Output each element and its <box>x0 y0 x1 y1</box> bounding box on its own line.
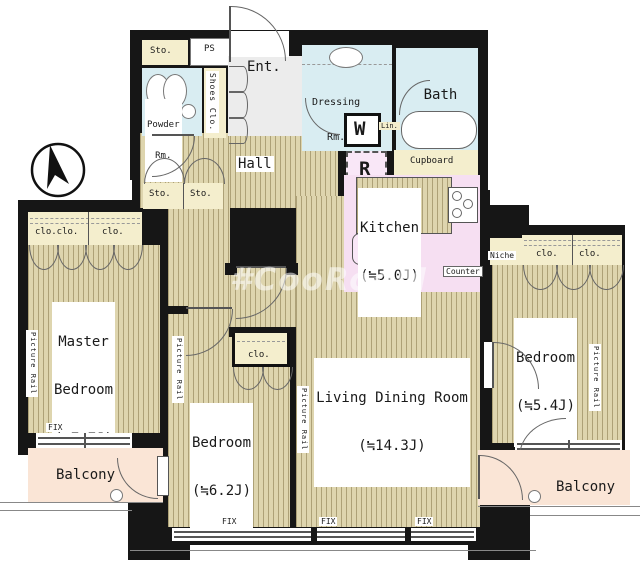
balcony-drain-icon <box>528 490 541 503</box>
bedroom3-closet2-label: clo. <box>577 249 603 259</box>
powder-bowl-icon <box>181 104 196 119</box>
pipe-space-label: PS <box>202 44 217 54</box>
shoe-cabinet-door-icon <box>229 118 248 144</box>
hall-storage1-label: Sto. <box>147 189 173 199</box>
bedroom2-top-wall <box>168 306 188 314</box>
entrance-label: Ent. <box>245 59 283 75</box>
bottom-window <box>172 528 476 541</box>
railing-line <box>0 510 132 511</box>
watermark: #CooRooM <box>230 262 429 298</box>
master-picture-rail-label: Picture Rail <box>26 330 38 397</box>
balcony-drain-icon <box>110 489 123 502</box>
railing-line <box>478 506 640 507</box>
stove-burner-icon <box>452 208 462 218</box>
shoes-closet-label: Shoes Clo. <box>206 71 219 133</box>
fix3-label: FIX <box>415 517 433 526</box>
bedroom3-closet1-label: clo. <box>534 249 560 259</box>
window-mullion <box>311 528 317 541</box>
storage-top-left-label: Sto. <box>148 46 174 56</box>
bedroom2-label: Bedroom (≒6.2J) <box>190 403 253 532</box>
niche-label: Niche <box>488 251 516 260</box>
dressing-sink-icon <box>329 47 363 68</box>
stove-burner-icon <box>463 199 473 209</box>
railing-line <box>0 502 163 503</box>
master-closet1-label: clo.clo. <box>33 227 80 237</box>
railing-line <box>130 550 536 551</box>
entrance-door-arc <box>231 6 286 61</box>
hall-storage-divider <box>183 183 184 209</box>
balcony-right-label: Balcony <box>554 479 617 495</box>
fix2-label: FIX <box>319 517 337 526</box>
counter-label: Counter <box>443 266 483 277</box>
master-closet2-label: clo. <box>100 227 126 237</box>
floor-plan: Sto. PS Powder Rm. Shoes Clo. Ent. Dress… <box>0 0 640 569</box>
north-arrow-icon <box>28 140 88 200</box>
balcony-left-label: Balcony <box>54 467 117 483</box>
living-label: Living Dining Room (≒14.3J) <box>314 358 470 487</box>
master-fix-label: FIX <box>46 423 64 432</box>
bedroom3-closet-divider <box>572 235 573 265</box>
linen-label: Lin. <box>379 122 400 130</box>
window-tick <box>84 433 86 449</box>
living-picture-rail-label: Picture Rail <box>297 386 309 453</box>
shoe-cabinet-door-icon <box>229 66 248 92</box>
master-closet-rail <box>30 223 140 224</box>
master-closet-divider <box>88 212 89 245</box>
shoe-cabinet-door-icon <box>229 92 248 118</box>
master-closet-rail <box>30 218 140 219</box>
washer-label: W <box>352 119 367 141</box>
bedroom2-closet-label: clo. <box>246 350 272 360</box>
window-line <box>174 531 474 533</box>
railing-line <box>530 515 640 516</box>
fix1-label: FIX <box>220 517 238 526</box>
hall-storage2-label: Sto. <box>188 189 214 199</box>
cupboard-label: Cupboard <box>408 156 455 166</box>
stove-burner-icon <box>452 191 462 201</box>
balcony-left-door-leaf <box>157 456 169 496</box>
bedroom2-picture-rail-label: Picture Rail <box>172 336 184 403</box>
bathtub-icon <box>401 111 477 149</box>
bedroom3-picture-rail-label: Picture Rail <box>589 344 601 411</box>
hall-label: Hall <box>236 156 274 172</box>
bedroom2-closet-rail <box>237 341 285 342</box>
window-line <box>174 536 474 538</box>
window-mullion <box>405 528 411 541</box>
